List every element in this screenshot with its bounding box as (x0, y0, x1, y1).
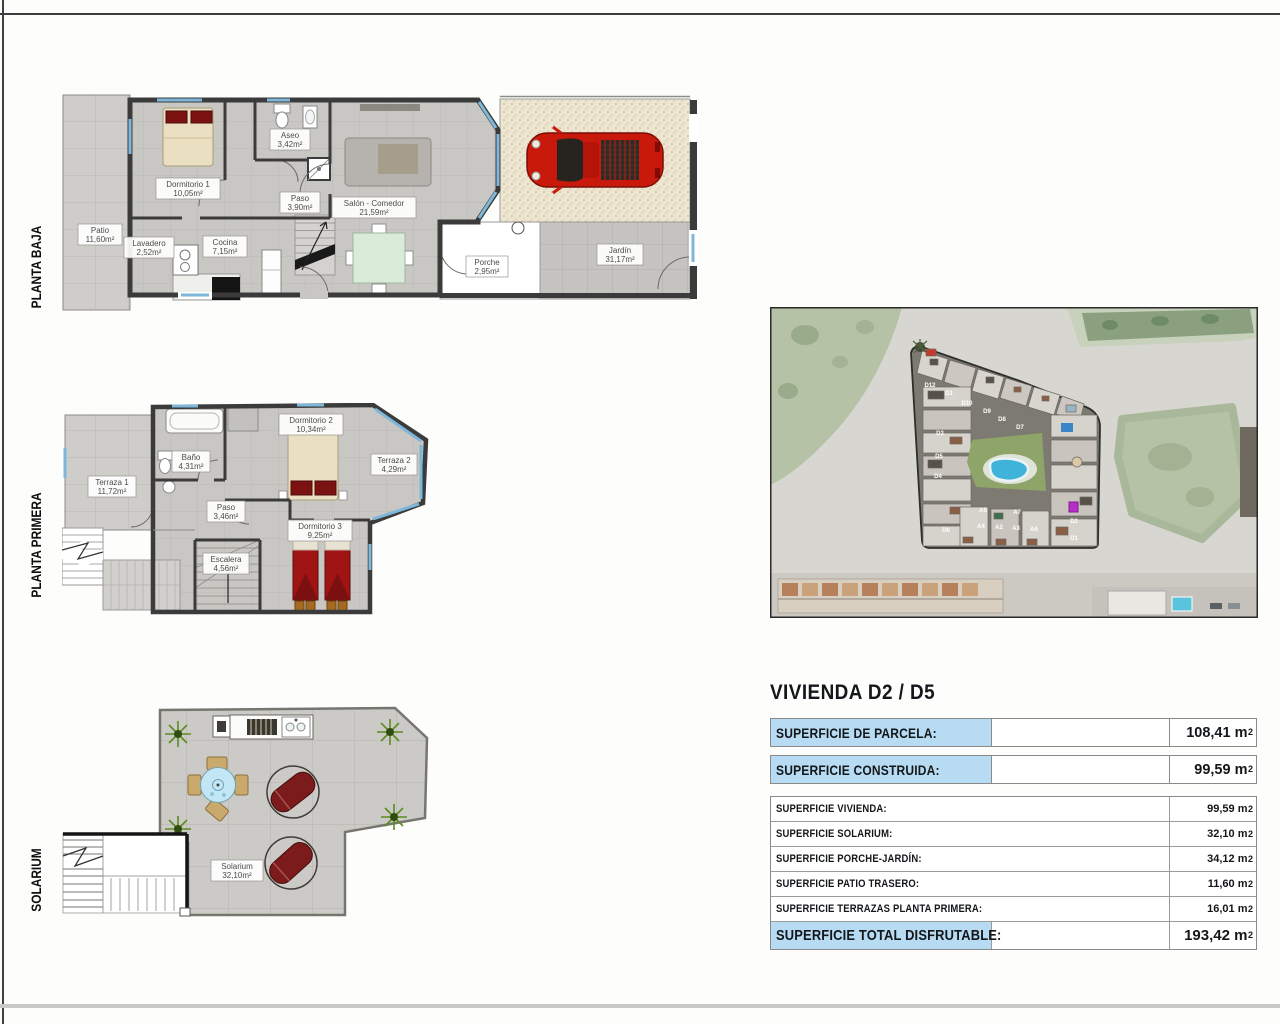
room-label: Lavadero2,52m² (124, 237, 174, 258)
svg-text:9,25m²: 9,25m² (308, 531, 333, 540)
parcela-row: SUPERFICIE DE PARCELA: 108,41 m2 (770, 718, 1257, 747)
unit-label: D6 (942, 528, 950, 534)
floor-plan-planta-primera: Terraza 111,72m² Baño4,31m² Dormitorio 2… (62, 403, 442, 618)
unit-marker-icon (1069, 502, 1078, 512)
room-label: Baño4,31m² (172, 451, 210, 472)
svg-text:Solarium: Solarium (221, 862, 253, 871)
svg-text:11,60m²: 11,60m² (86, 235, 115, 244)
frame-top-line (0, 13, 1280, 15)
svg-text:4,56m²: 4,56m² (214, 564, 239, 573)
svg-text:Dormitorio 1: Dormitorio 1 (166, 180, 210, 189)
svg-text:Aseo: Aseo (281, 131, 300, 140)
room-label: Porche2,95m² (466, 256, 508, 277)
spacer-cell (992, 719, 1170, 746)
svg-text:Jardín: Jardín (609, 246, 631, 255)
room-label: Terraza 111,72m² (88, 476, 136, 497)
unit-label: D10 (961, 401, 973, 407)
closet-icon (228, 407, 258, 431)
unit-label: A3 (1012, 526, 1020, 532)
unit-label: A5 (979, 508, 987, 514)
svg-text:Paso: Paso (217, 503, 236, 512)
room-label: Paso3,46m² (207, 501, 245, 522)
svg-text:32,10m²: 32,10m² (222, 871, 252, 880)
floor-plan-solarium: Solarium32,10m² (60, 698, 445, 933)
roof-pool-icon (1061, 423, 1073, 432)
stairs-icon (63, 833, 190, 916)
svg-text:11,72m²: 11,72m² (98, 487, 127, 496)
bed-icon (325, 540, 350, 611)
svg-text:Porche: Porche (474, 258, 500, 267)
room-label: Salón - Comedor21,59m² (332, 197, 416, 218)
svg-text:Baño: Baño (182, 453, 201, 462)
unit-label: D1 (1070, 536, 1078, 542)
table-row: SUPERFICIE PORCHE-JARDÍN: 34,12 m2 (771, 847, 1256, 872)
frame-bottom-line (0, 1004, 1280, 1008)
svg-text:21,59m²: 21,59m² (359, 208, 389, 217)
svg-text:Cocina: Cocina (213, 238, 238, 247)
svg-text:Paso: Paso (291, 194, 310, 203)
room-label: Solarium32,10m² (211, 860, 263, 881)
svg-text:3,42m²: 3,42m² (278, 140, 303, 149)
south-wall (440, 293, 697, 298)
svg-text:Lavadero: Lavadero (132, 239, 166, 248)
exterior-stairs-icon (62, 528, 103, 585)
room-label: Dormitorio 110,05m² (156, 178, 220, 199)
construida-value: 99,59 m2 (1170, 756, 1256, 783)
porch-column (512, 222, 524, 234)
room-label: Terraza 24,29m² (371, 454, 417, 475)
unit-label: D4 (934, 474, 942, 480)
unit-label: D7 (1016, 425, 1024, 431)
svg-text:10,05m²: 10,05m² (173, 189, 203, 198)
svg-text:Patio: Patio (91, 226, 110, 235)
building-column (1051, 415, 1097, 546)
dining-table-icon (346, 224, 413, 293)
table-row: SUPERFICIE VIVIENDA: 99,59 m2 (771, 797, 1256, 822)
parcela-label: SUPERFICIE DE PARCELA: (771, 719, 992, 746)
stairs-icon (295, 215, 335, 275)
floor-plan-planta-baja: Dormitorio 110,05m² Aseo3,42m² Paso3,90m… (62, 94, 712, 312)
unit-label: D9 (983, 409, 991, 415)
shower-icon (308, 158, 330, 180)
svg-text:2,52m²: 2,52m² (137, 248, 162, 257)
summary-title: VIVIENDA D2 / D5 (770, 681, 1208, 705)
table-row: SUPERFICIE SOLARIUM: 32,10 m2 (771, 822, 1256, 847)
parcela-value: 108,41 m2 (1170, 719, 1256, 746)
bed-icon (279, 430, 347, 500)
svg-text:Terraza 1: Terraza 1 (95, 478, 129, 487)
svg-text:Dormitorio 2: Dormitorio 2 (289, 416, 333, 425)
counter-icon (213, 715, 313, 739)
label-planta-primera: PLANTA PRIMERA (27, 481, 45, 609)
unit-label: A4 (977, 524, 985, 530)
patio-area (63, 95, 130, 310)
total-label: SUPERFICIE TOTAL DISFRUTABLE: (771, 922, 992, 949)
spacer-cell (992, 922, 1170, 949)
total-row: SUPERFICIE TOTAL DISFRUTABLE: 193,42 m2 (771, 922, 1256, 949)
svg-text:10,34m²: 10,34m² (296, 425, 326, 434)
bed-icon (163, 108, 213, 166)
red-car-icon (527, 127, 663, 193)
bed-icon (293, 540, 318, 611)
surface-detail-table: SUPERFICIE VIVIENDA: 99,59 m2 SUPERFICIE… (770, 796, 1257, 950)
room-label: Patio11,60m² (78, 224, 122, 245)
svg-text:3,90m²: 3,90m² (288, 203, 313, 212)
svg-text:Dormitorio 3: Dormitorio 3 (298, 522, 342, 531)
terrace1-area (65, 415, 153, 530)
svg-text:Salón - Comedor: Salón - Comedor (344, 199, 405, 208)
unit-label: A7 (1013, 510, 1021, 516)
plan-sheet: PLANTA BAJA PLANTA PRIMERA SOLARIUM (0, 0, 1280, 1024)
svg-text:Terraza 2: Terraza 2 (377, 456, 411, 465)
room-label: Escalera4,56m² (203, 553, 249, 574)
pool-icon (990, 459, 1028, 481)
summary-panel: VIVIENDA D2 / D5 SUPERFICIE DE PARCELA: … (770, 681, 1257, 950)
total-value: 193,42 m2 (1170, 922, 1256, 949)
unit-label: D5 (935, 454, 943, 460)
room-label: Dormitorio 39,25m² (288, 520, 352, 541)
svg-text:7,15m²: 7,15m² (213, 247, 238, 256)
unit-label: D3 (936, 431, 944, 437)
svg-text:31,17m²: 31,17m² (605, 255, 635, 264)
table-row: SUPERFICIE PATIO TRASERO: 11,60 m2 (771, 872, 1256, 897)
room-label: Aseo3,42m² (270, 129, 310, 150)
aerial-site-photo: D12D1D10D9D8D7D3D5D4D6A5A4A7A2A3A6D2D1 (770, 307, 1258, 618)
room-label: Paso3,90m² (280, 192, 320, 213)
unit-label: A6 (1030, 527, 1038, 533)
svg-text:4,29m²: 4,29m² (382, 465, 407, 474)
unit-label: A2 (995, 525, 1003, 531)
label-solarium: SOLARIUM (27, 833, 45, 927)
room-label: Jardín31,17m² (597, 244, 643, 265)
svg-text:Escalera: Escalera (210, 555, 242, 564)
construida-row: SUPERFICIE CONSTRUIDA: 99,59 m2 (770, 755, 1257, 784)
construida-label: SUPERFICIE CONSTRUIDA: (771, 756, 992, 783)
svg-text:3,46m²: 3,46m² (214, 512, 239, 521)
unit-label: D12 (924, 383, 936, 389)
frame-left-line (2, 0, 4, 1024)
unit-label: D1 (945, 391, 953, 397)
svg-text:2,95m²: 2,95m² (475, 267, 500, 276)
unit-label: D8 (998, 417, 1006, 423)
label-planta-baja: PLANTA BAJA (27, 216, 45, 318)
room-label: Cocina7,15m² (203, 236, 247, 257)
svg-text:4,31m²: 4,31m² (179, 462, 204, 471)
spacer-cell (992, 756, 1170, 783)
room-label: Dormitorio 210,34m² (279, 414, 343, 435)
table-row: SUPERFICIE TERRAZAS PLANTA PRIMERA: 16,0… (771, 897, 1256, 922)
unit-label: D2 (1070, 519, 1078, 525)
